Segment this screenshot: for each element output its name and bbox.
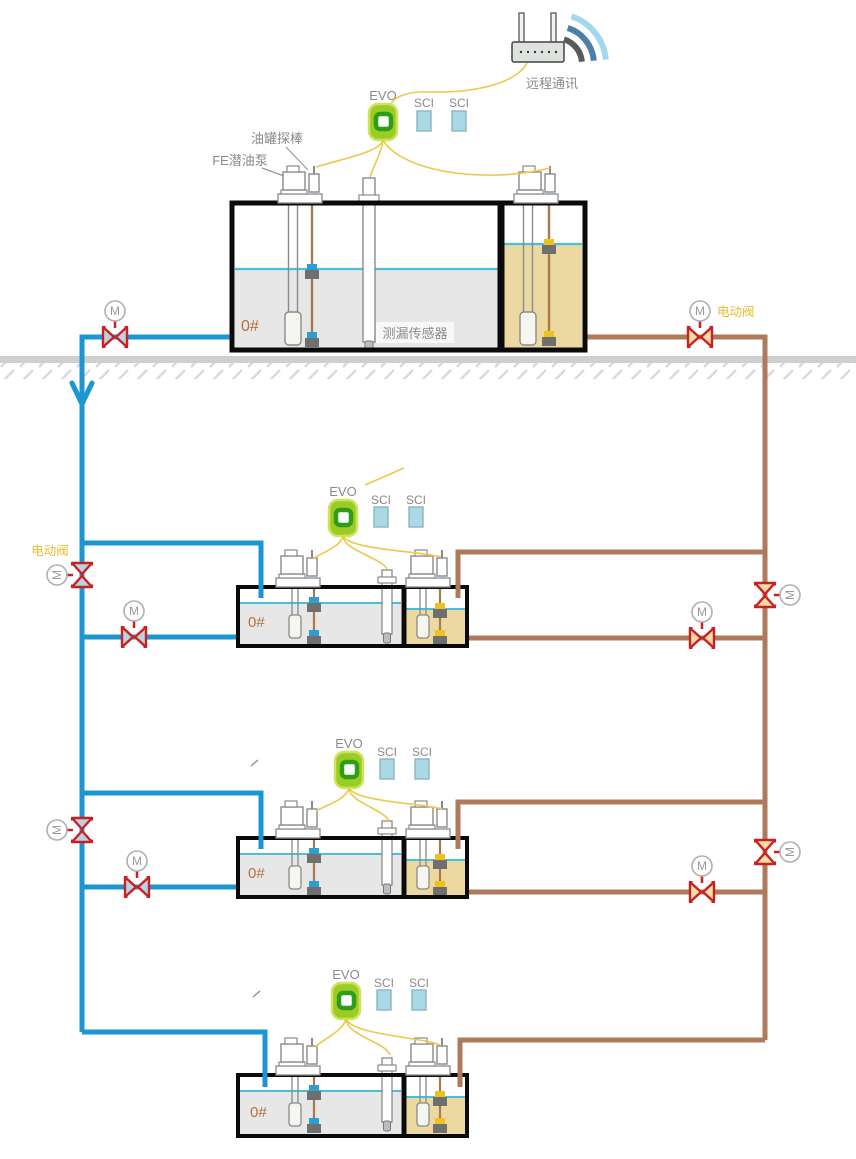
sci-module-icon xyxy=(409,507,423,527)
pump-fitting-icon xyxy=(276,550,320,587)
sci-module-icon xyxy=(452,111,466,131)
sci-label: SCI xyxy=(377,745,397,759)
gasoline-pipe-network xyxy=(458,337,765,1087)
motor-valve-diesel-riser-3: M xyxy=(47,817,93,843)
motor-label: M xyxy=(697,859,707,873)
evo-console-1: EVO SCI SCI xyxy=(316,88,550,177)
pump-fitting-icon xyxy=(406,550,450,587)
motor-valve-gasoline-riser-3: M xyxy=(754,839,800,865)
tank1-gasoline-liquid xyxy=(503,244,582,348)
evo-console-2: EVO SCI SCI xyxy=(313,468,441,569)
evo-console-icon xyxy=(329,500,357,536)
fuel-monitoring-diagram: 0# 测漏传感器 EVO SCI SCI 油罐探棒 FE潜油泵 xyxy=(0,0,856,1154)
motor-label: M xyxy=(129,604,139,618)
sci-module-icon xyxy=(374,507,388,527)
sci-label: SCI xyxy=(406,493,426,507)
sci-label: SCI xyxy=(449,96,469,110)
antenna-icon xyxy=(551,13,556,43)
pump-fitting-icon xyxy=(276,1038,320,1075)
electric-valve-label: 电动阀 xyxy=(717,305,755,319)
sci-module-icon xyxy=(380,759,394,779)
station-2: 0# EVO SCI SCI xyxy=(238,468,467,646)
tank-4: 0# xyxy=(238,1038,467,1136)
signal-wires xyxy=(316,140,550,177)
motor-valve-gasoline-riser-2: M xyxy=(754,582,800,608)
pump-fitting-icon xyxy=(276,801,320,838)
ground-line xyxy=(0,356,856,379)
sci-module-icon xyxy=(417,111,431,131)
motor-valve-gasoline-branch-2: M xyxy=(689,602,715,649)
sci-label: SCI xyxy=(374,976,394,990)
evo-console-icon xyxy=(369,104,397,140)
motor-valve-gasoline-1: M 电动阀 xyxy=(687,301,755,348)
station-1: 0# 测漏传感器 EVO SCI SCI 油罐探棒 FE潜油泵 xyxy=(212,88,585,352)
antenna-icon xyxy=(519,13,524,43)
submersible-pump-label: FE潜油泵 xyxy=(212,153,268,168)
fuel-grade-label: 0# xyxy=(241,318,259,335)
motor-valve-diesel-branch-3: M xyxy=(124,851,150,898)
pump-fitting-icon xyxy=(406,1038,450,1075)
station-3: 0# EVO SCI SCI xyxy=(238,736,467,897)
motor-valve-gasoline-branch-3: M xyxy=(689,856,715,903)
sci-label: SCI xyxy=(414,96,434,110)
tank-3: 0# xyxy=(238,801,467,897)
motor-label: M xyxy=(50,570,64,580)
evo-label: EVO xyxy=(332,967,359,982)
leak-sensor-label: 测漏传感器 xyxy=(382,326,447,341)
wifi-signal-icon xyxy=(564,16,606,61)
motor-label: M xyxy=(50,825,64,835)
motor-label: M xyxy=(110,304,120,318)
sci-module-icon xyxy=(377,990,391,1010)
sci-module-icon xyxy=(412,990,426,1010)
fuel-grade-label: 0# xyxy=(248,614,265,631)
motor-label: M xyxy=(697,605,707,619)
motor-label: M xyxy=(783,847,797,857)
fuel-grade-label: 0# xyxy=(248,865,265,882)
station-4: 0# EVO SCI SCI xyxy=(238,967,467,1136)
sci-label: SCI xyxy=(371,493,391,507)
sci-label: SCI xyxy=(412,745,432,759)
fuel-grade-label: 0# xyxy=(250,1104,267,1121)
motor-label: M xyxy=(695,304,705,318)
tank-probe-label: 油罐探棒 xyxy=(251,131,303,146)
sci-label: SCI xyxy=(409,976,429,990)
tank-1: 0# 测漏传感器 xyxy=(232,166,585,352)
diesel-pipe-network xyxy=(82,337,265,1087)
motor-label: M xyxy=(132,854,142,868)
evo-label: EVO xyxy=(329,484,356,499)
wifi-router xyxy=(512,13,564,62)
evo-console-icon xyxy=(332,983,360,1019)
evo-label: EVO xyxy=(335,736,362,751)
sci-module-icon xyxy=(415,759,429,779)
remote-comm-unit: 远程通讯 xyxy=(391,13,606,104)
remote-comm-label: 远程通讯 xyxy=(526,76,578,91)
motor-valve-diesel-1: M xyxy=(102,301,128,348)
tank-2: 0# xyxy=(238,550,467,646)
evo-console-4: EVO SCI SCI xyxy=(253,967,440,1055)
pump-fitting-icon xyxy=(278,166,322,203)
motor-label: M xyxy=(783,590,797,600)
diagram-canvas: 0# 测漏传感器 EVO SCI SCI 油罐探棒 FE潜油泵 xyxy=(0,0,856,1154)
electric-valve-label: 电动阀 xyxy=(31,544,69,558)
motor-valve-diesel-branch-2: M xyxy=(121,601,147,648)
evo-console-icon xyxy=(335,752,363,788)
